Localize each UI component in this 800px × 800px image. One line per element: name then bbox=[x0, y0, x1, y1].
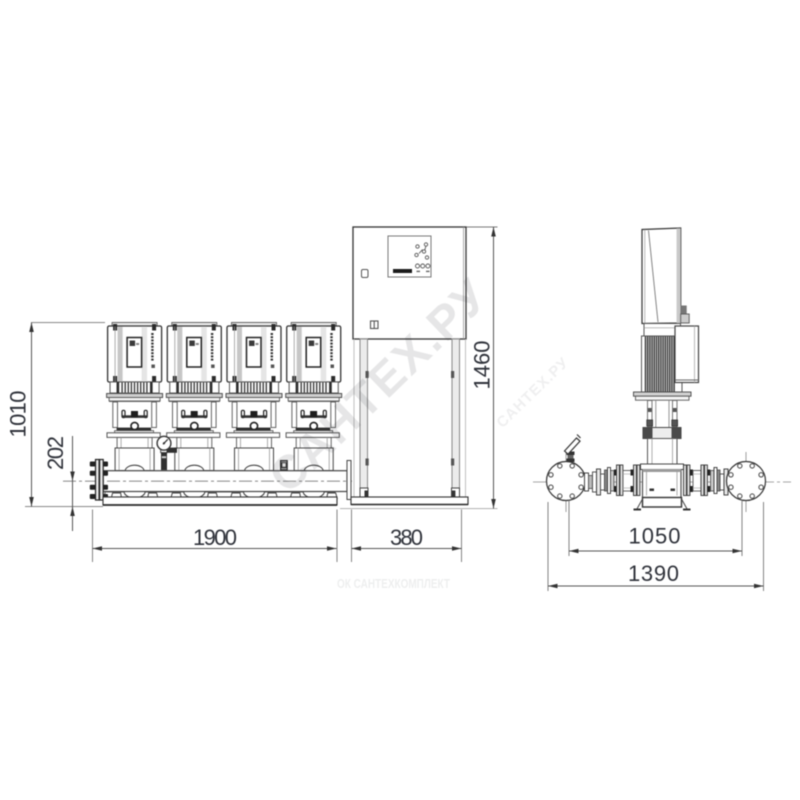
svg-text:1050: 1050 bbox=[629, 524, 681, 549]
svg-text:202: 202 bbox=[43, 436, 68, 470]
svg-text:ОК САНТЕХКОМПЛЕКТ: ОК САНТЕХКОМПЛЕКТ bbox=[337, 577, 450, 591]
svg-text:380: 380 bbox=[390, 525, 423, 550]
svg-text:1900: 1900 bbox=[193, 525, 237, 550]
svg-text:1010: 1010 bbox=[6, 391, 31, 438]
svg-text:1390: 1390 bbox=[628, 561, 679, 586]
svg-text:1460: 1460 bbox=[470, 341, 495, 390]
